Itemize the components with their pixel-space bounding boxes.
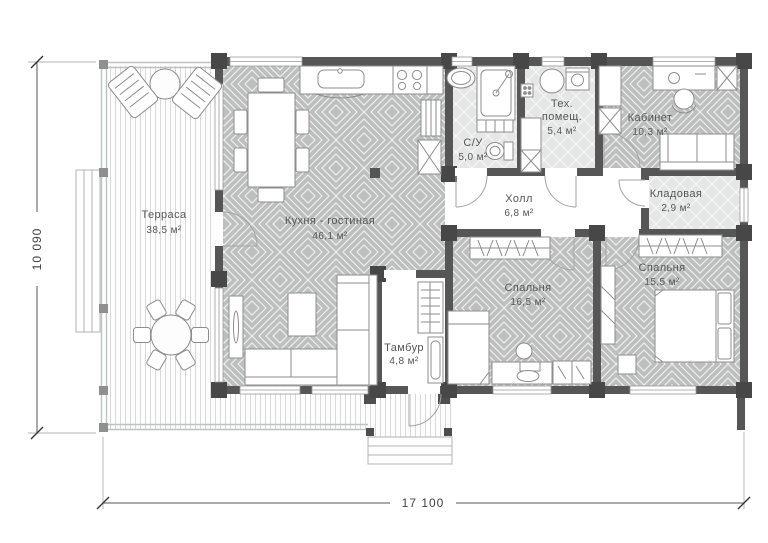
bathroom-area: 5,0 м² — [458, 152, 488, 163]
bedroom1-dresser — [553, 361, 591, 384]
utility-area: 5,4 м² — [547, 126, 577, 137]
bathroom-sink — [447, 68, 475, 88]
window — [542, 57, 564, 66]
floor-plan-svg: 10 090 17 100 Терраса 38,5 м² Кухня - го… — [0, 0, 768, 543]
coffee-table — [288, 293, 316, 336]
bedroom2-bed — [655, 290, 734, 362]
window — [452, 57, 472, 66]
bedroom2-wardrobe — [639, 235, 722, 257]
window — [215, 288, 223, 382]
vestibule-area: 4,8 м² — [389, 356, 419, 367]
window — [493, 386, 551, 394]
bedroom2-nightstand — [618, 355, 636, 374]
vestibule-closet — [418, 282, 443, 333]
boiler — [540, 69, 564, 93]
window — [230, 57, 302, 66]
bedroom2-area: 15,5 м² — [644, 277, 680, 288]
storage-area: 2,9 м² — [661, 203, 691, 214]
window — [740, 188, 748, 222]
shower — [477, 66, 515, 120]
kitchen-living-label: Кухня - гостиная — [285, 215, 375, 227]
vestibule-cabinet — [428, 337, 443, 383]
utility-label-line1: Тех. — [551, 98, 573, 110]
office-label: Кабинет — [628, 112, 673, 124]
kitchen-tall-cabinet — [421, 100, 441, 136]
terrace-area: 38,5 м² — [146, 225, 182, 236]
kitchen-wardrobe — [418, 140, 441, 174]
office-area: 10,3 м² — [632, 127, 668, 138]
office-desk — [653, 66, 715, 90]
bedroom1-area: 16,5 м² — [510, 297, 546, 308]
utility-appliance — [521, 84, 533, 97]
vestibule-label: Тамбур — [384, 342, 424, 354]
window — [653, 57, 715, 66]
kitchen-living-area: 46,1 м² — [312, 231, 348, 242]
utility-wardrobe — [521, 150, 541, 172]
tv-stand — [229, 296, 243, 358]
terrace-deck-floor — [106, 66, 215, 430]
utility-cabinet — [521, 118, 541, 150]
window — [630, 386, 696, 394]
hall-area: 6,8 м² — [504, 208, 534, 219]
bedroom2-label: Спальня — [639, 262, 686, 274]
window — [240, 386, 300, 394]
window — [215, 84, 223, 190]
office-wardrobe — [717, 66, 737, 90]
office-sofa — [660, 134, 734, 170]
stove — [393, 66, 427, 94]
dimension-horizontal: 17 100 — [402, 496, 445, 510]
utility-label-line2: помещ. — [542, 111, 582, 123]
toilet — [486, 142, 513, 160]
bedroom1-wardrobe — [470, 237, 550, 259]
office-shelf — [599, 108, 621, 134]
porch-steps — [368, 437, 452, 464]
bedroom1-label: Спальня — [505, 282, 552, 294]
vestibule-opening — [384, 270, 416, 278]
office-cabinet — [599, 66, 621, 106]
storage-label: Кладовая — [650, 188, 702, 200]
terrace-side-steps — [76, 170, 100, 332]
dimension-vertical: 10 090 — [30, 228, 44, 271]
bedroom2-tall-wardrobe — [601, 266, 615, 344]
bathroom-label: С/У — [463, 137, 483, 149]
kitchen-hall-passage — [445, 178, 453, 229]
hall-label: Холл — [505, 193, 533, 205]
floor-plan-page: 10 090 17 100 Терраса 38,5 м² Кухня - го… — [0, 0, 768, 543]
window — [312, 386, 368, 394]
bedroom1-bed — [448, 311, 489, 384]
terrace-label: Терраса — [142, 209, 187, 221]
shower-mat — [477, 120, 513, 132]
washing-machine — [566, 68, 589, 90]
